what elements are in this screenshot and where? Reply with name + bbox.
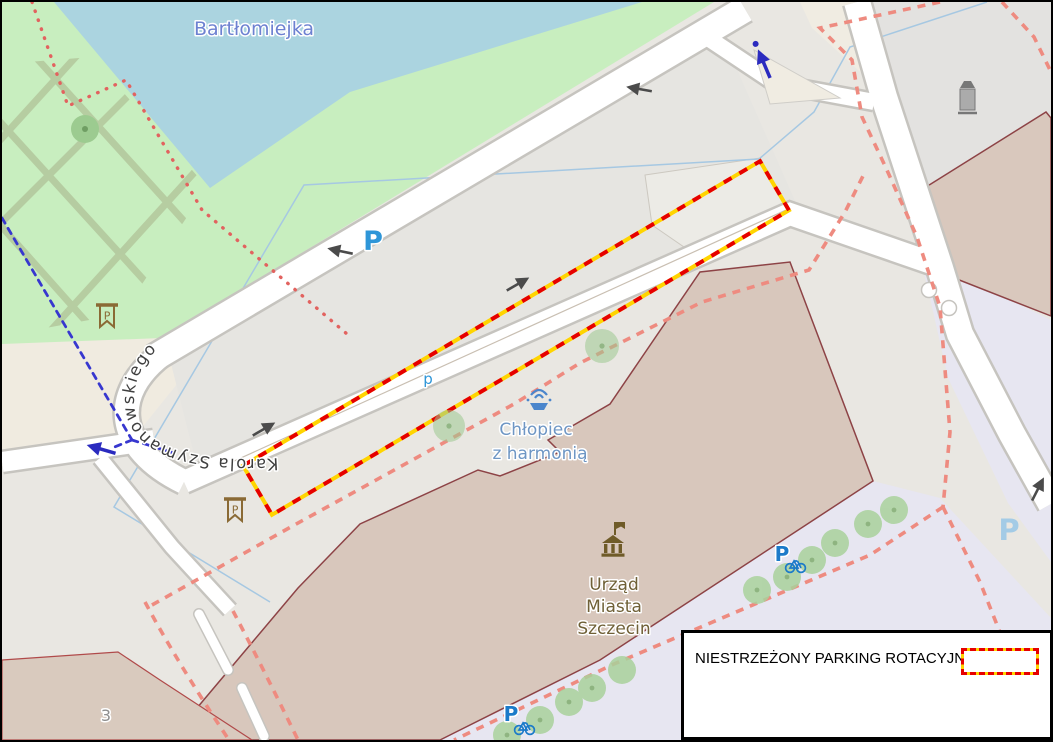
svg-text:P: P: [104, 310, 111, 323]
legend-box: NIESTRZEŻONY PARKING ROTACYJNY: [681, 630, 1053, 740]
legend-swatch-parking: [961, 648, 1039, 675]
fountain-label-line2: z harmonią: [492, 444, 587, 464]
water-label: Bartłomiejka: [194, 18, 314, 40]
svg-text:P: P: [232, 504, 239, 517]
parking-icon-small: p: [423, 370, 433, 388]
cityhall-label-line3: Szczecin: [577, 619, 650, 639]
legend-swatch-dashes: [961, 648, 1039, 675]
house-number-label: 3: [101, 706, 111, 725]
crossing-node: [942, 301, 957, 316]
bike-parking-label: P: [775, 542, 790, 566]
map-canvas: P P Karola Szymanowskiego Bartłomiejka C…: [0, 0, 1053, 742]
legend-label: NIESTRZEŻONY PARKING ROTACYJNY: [695, 650, 975, 667]
parking-area-label: P: [998, 513, 1019, 547]
bike-parking-label: P: [504, 702, 519, 726]
cityhall-label-line2: Miasta: [586, 597, 642, 617]
cityhall-label-line1: Urząd: [589, 575, 639, 595]
parking-icon: P: [363, 226, 383, 257]
fountain-label-line1: Chłopiec: [499, 420, 572, 440]
